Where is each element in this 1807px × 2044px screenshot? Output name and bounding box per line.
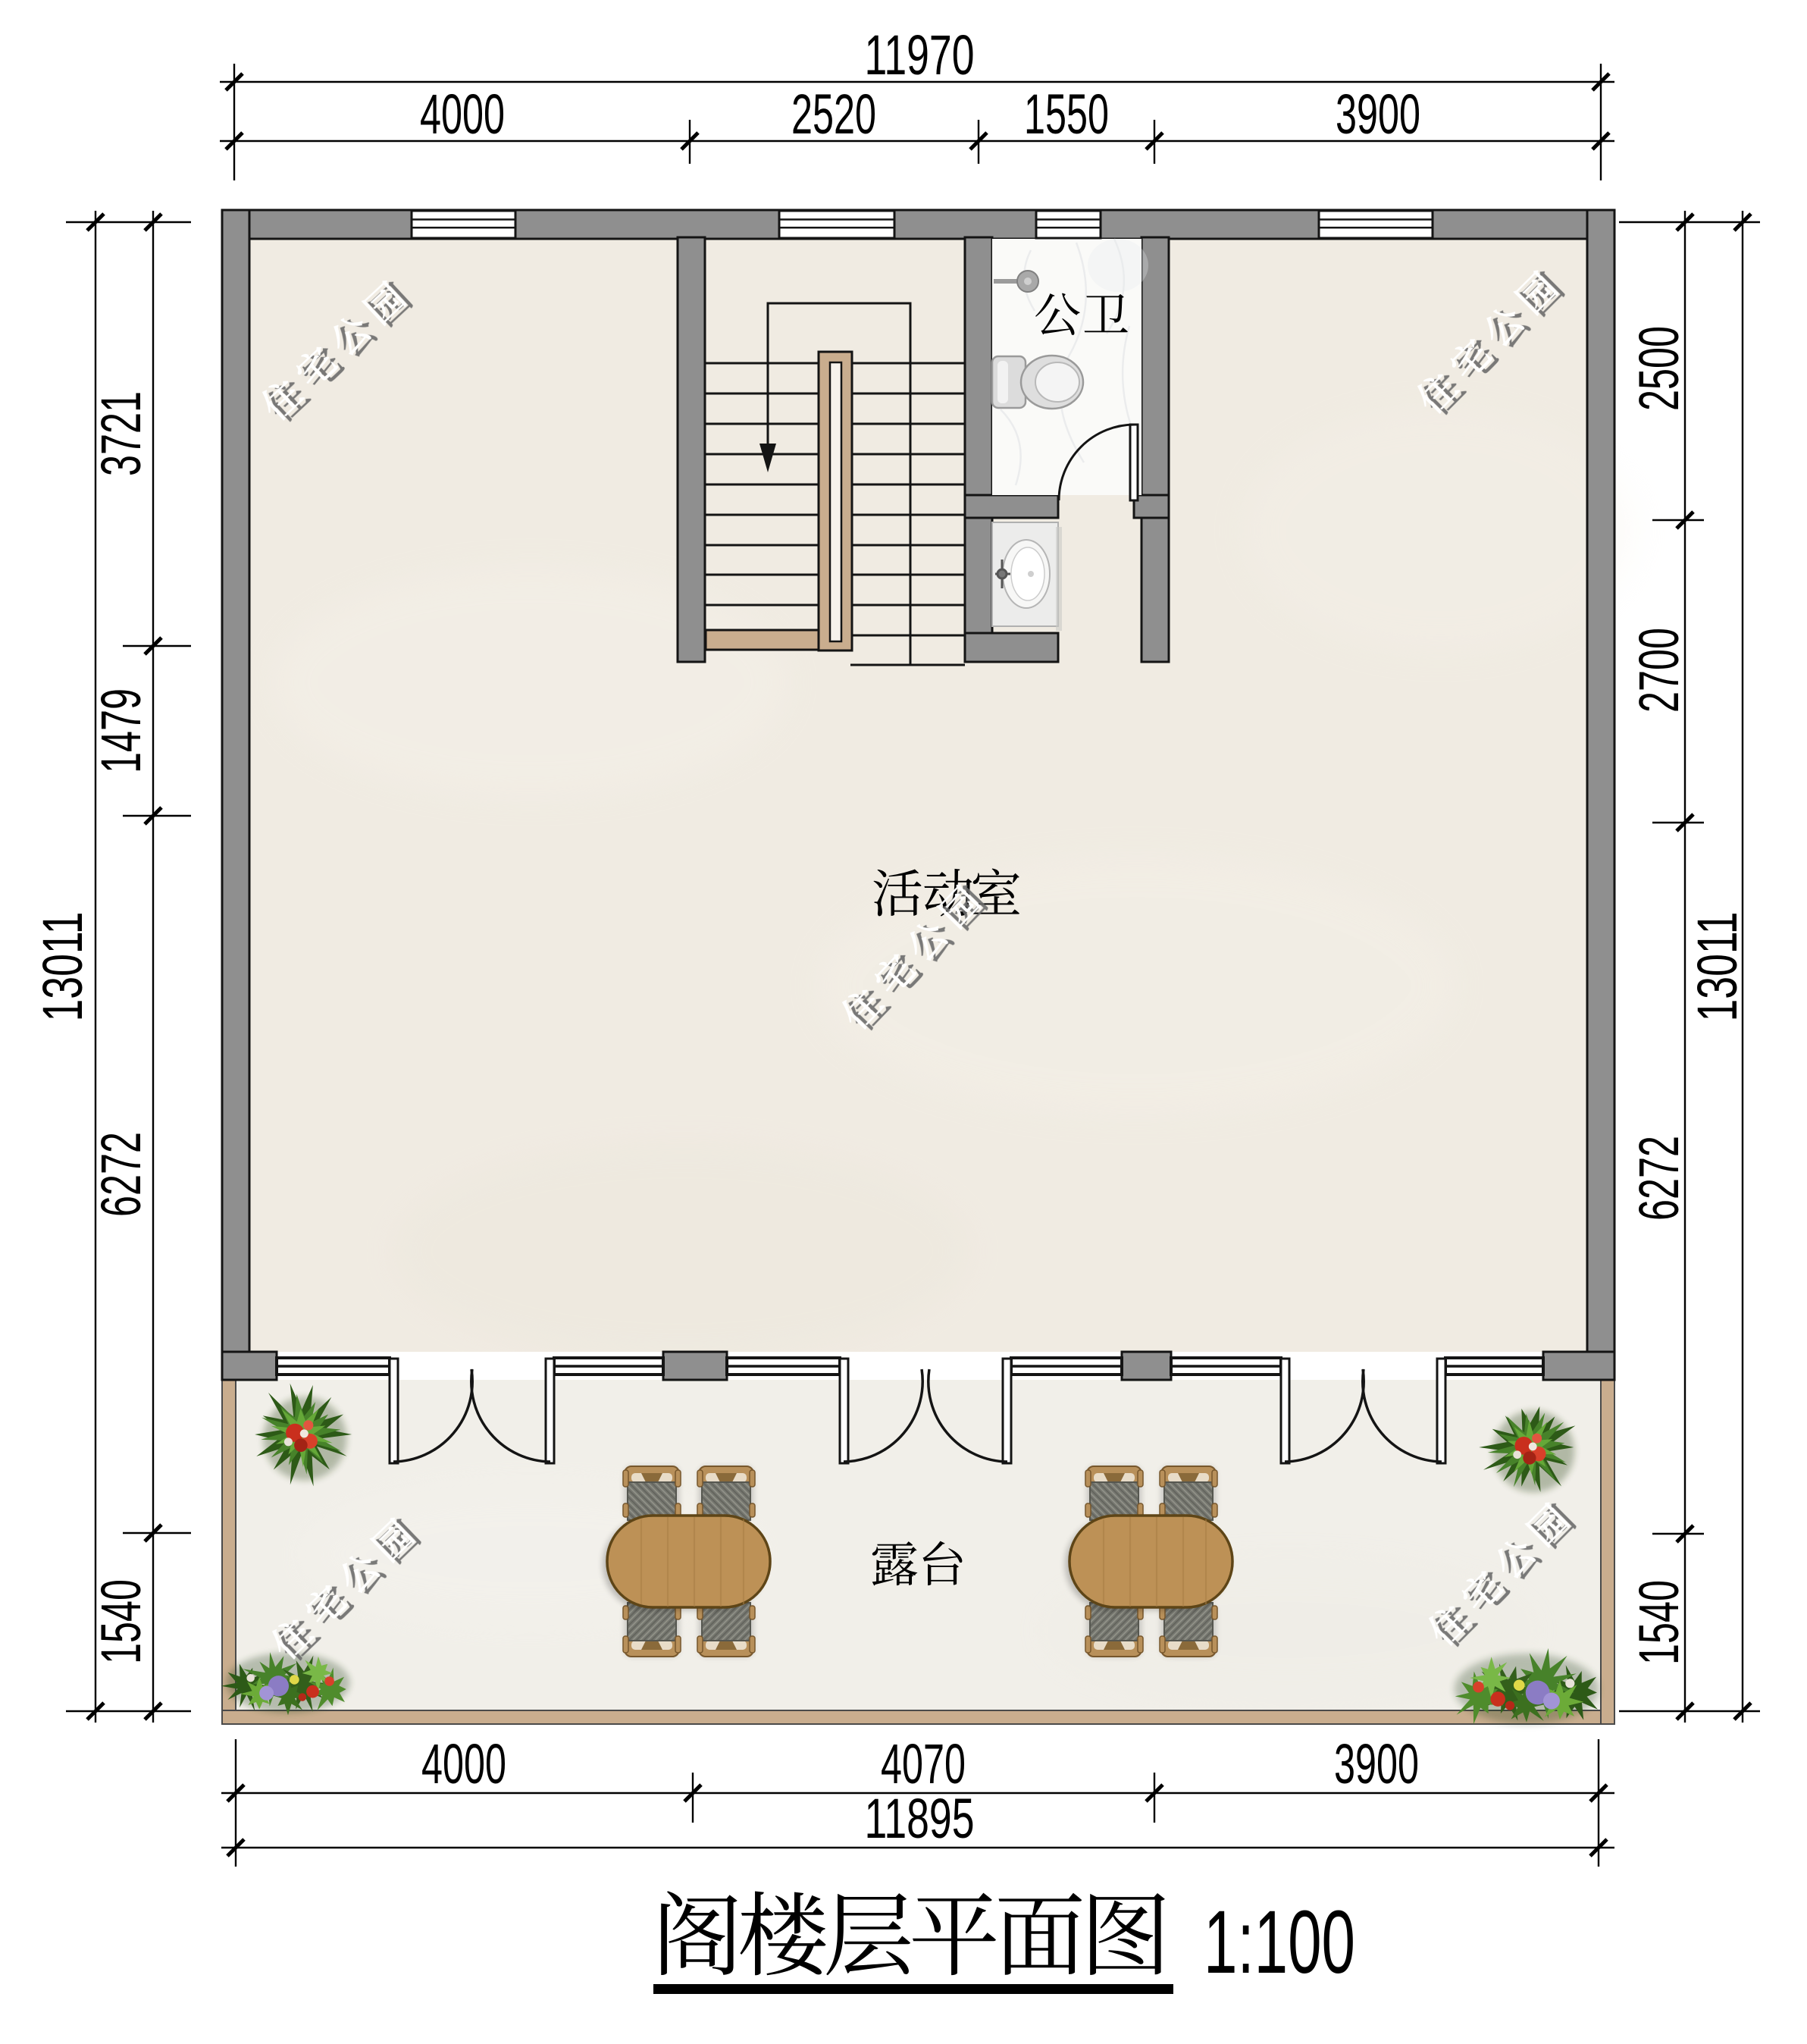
svg-text:4000: 4000 xyxy=(421,1732,506,1795)
svg-text:3900: 3900 xyxy=(1334,1732,1419,1795)
svg-text:13011: 13011 xyxy=(1686,912,1749,1022)
svg-text:6272: 6272 xyxy=(89,1132,152,1217)
svg-text:11970: 11970 xyxy=(865,24,975,86)
svg-text:2500: 2500 xyxy=(1627,326,1690,411)
svg-text:1540: 1540 xyxy=(89,1579,152,1664)
svg-text:3721: 3721 xyxy=(89,391,152,476)
svg-text:13011: 13011 xyxy=(31,912,94,1022)
svg-text:3900: 3900 xyxy=(1336,83,1420,146)
svg-text:4070: 4070 xyxy=(881,1732,966,1795)
svg-text:11895: 11895 xyxy=(865,1787,975,1850)
svg-text:1479: 1479 xyxy=(89,688,152,773)
svg-text:2700: 2700 xyxy=(1627,628,1690,713)
svg-text:1:100: 1:100 xyxy=(1204,1892,1355,1992)
svg-text:4000: 4000 xyxy=(420,83,505,146)
svg-text:2520: 2520 xyxy=(791,83,876,146)
svg-text:1540: 1540 xyxy=(1627,1580,1690,1665)
svg-text:6272: 6272 xyxy=(1627,1136,1690,1221)
svg-text:1550: 1550 xyxy=(1024,83,1109,146)
